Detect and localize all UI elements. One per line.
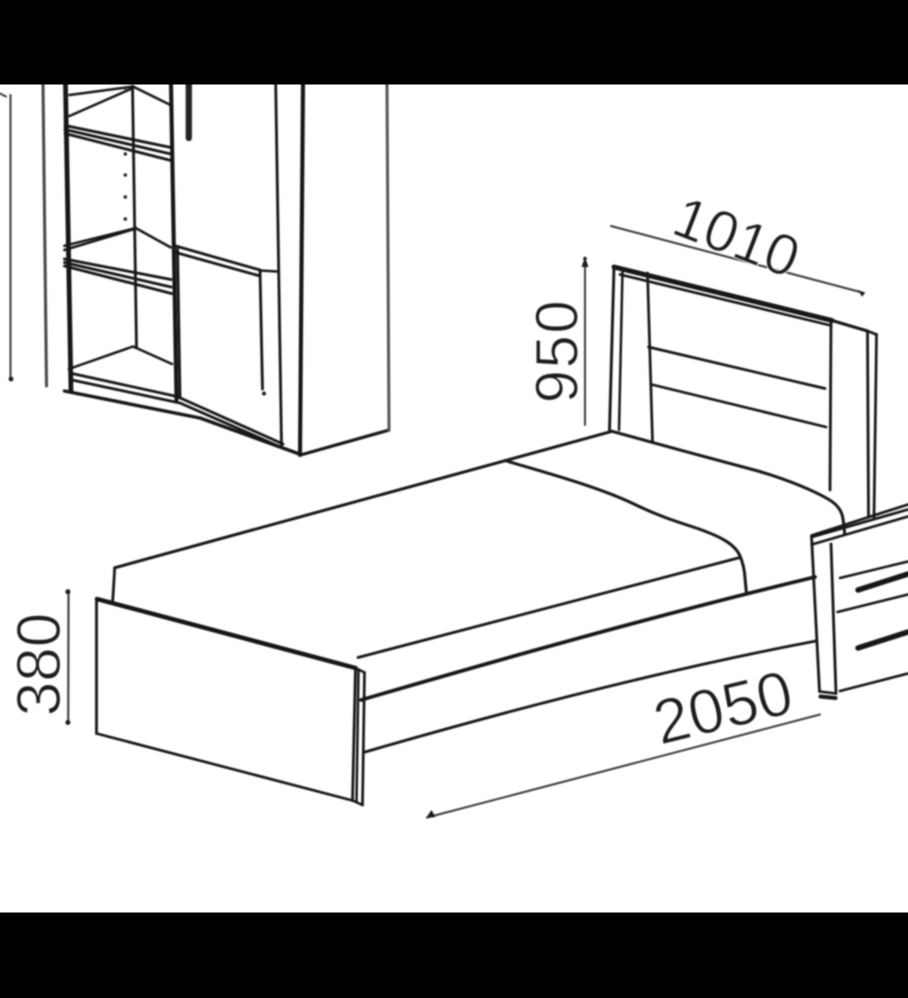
svg-text:950: 950 — [524, 299, 591, 404]
svg-text:380: 380 — [5, 613, 74, 716]
